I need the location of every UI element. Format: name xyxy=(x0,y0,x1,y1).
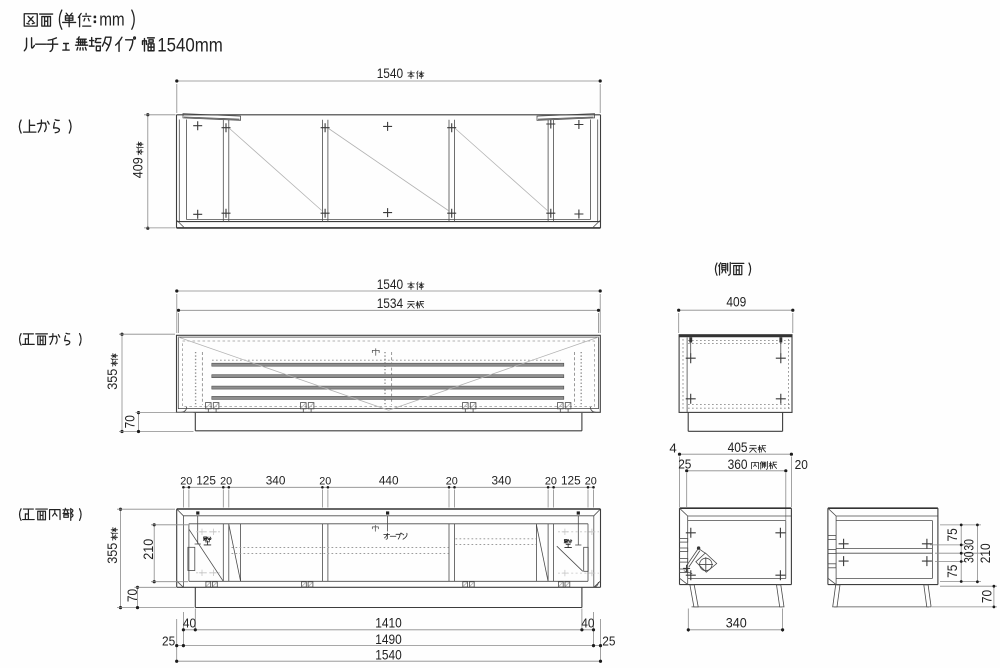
svg-text:20: 20 xyxy=(795,457,808,472)
svg-text:20: 20 xyxy=(220,475,232,487)
svg-text:20: 20 xyxy=(585,475,597,487)
svg-text:440: 440 xyxy=(379,473,399,487)
svg-text:210: 210 xyxy=(140,539,156,560)
svg-text:4: 4 xyxy=(669,441,676,456)
svg-text:25: 25 xyxy=(602,633,615,648)
svg-text:340: 340 xyxy=(726,614,747,630)
svg-text:20: 20 xyxy=(180,475,192,487)
svg-text:75: 75 xyxy=(944,528,960,541)
svg-text:1540mm: 1540mm xyxy=(157,34,223,56)
svg-text:409: 409 xyxy=(726,293,746,309)
svg-text:125: 125 xyxy=(196,473,216,487)
svg-text:340: 340 xyxy=(491,473,511,487)
svg-text:75: 75 xyxy=(944,565,960,578)
svg-text:1410: 1410 xyxy=(375,614,402,630)
svg-text:1534: 1534 xyxy=(377,295,404,311)
svg-text:70: 70 xyxy=(122,415,138,428)
svg-text:409: 409 xyxy=(130,157,146,178)
svg-text:70: 70 xyxy=(124,589,140,602)
svg-text:1540: 1540 xyxy=(377,276,404,292)
svg-text:40: 40 xyxy=(183,615,196,630)
svg-text:20: 20 xyxy=(545,475,557,487)
svg-text:30: 30 xyxy=(960,539,976,551)
svg-text:30: 30 xyxy=(960,551,976,563)
svg-text:25: 25 xyxy=(678,457,691,472)
svg-text:1540: 1540 xyxy=(375,646,402,662)
svg-text:355: 355 xyxy=(104,369,120,390)
svg-text:40: 40 xyxy=(581,615,594,630)
svg-text:340: 340 xyxy=(266,473,286,487)
svg-text:355: 355 xyxy=(104,543,120,564)
svg-text:405: 405 xyxy=(728,440,748,455)
svg-text:70: 70 xyxy=(978,590,994,603)
svg-text:1490: 1490 xyxy=(375,631,402,647)
svg-text:125: 125 xyxy=(561,473,581,487)
svg-text:360: 360 xyxy=(728,457,748,472)
svg-text:mm: mm xyxy=(99,10,125,30)
svg-text:210: 210 xyxy=(977,543,993,563)
svg-text:1540: 1540 xyxy=(377,65,404,81)
svg-text:25: 25 xyxy=(162,633,175,648)
svg-text:20: 20 xyxy=(446,475,458,487)
svg-text:20: 20 xyxy=(319,475,331,487)
